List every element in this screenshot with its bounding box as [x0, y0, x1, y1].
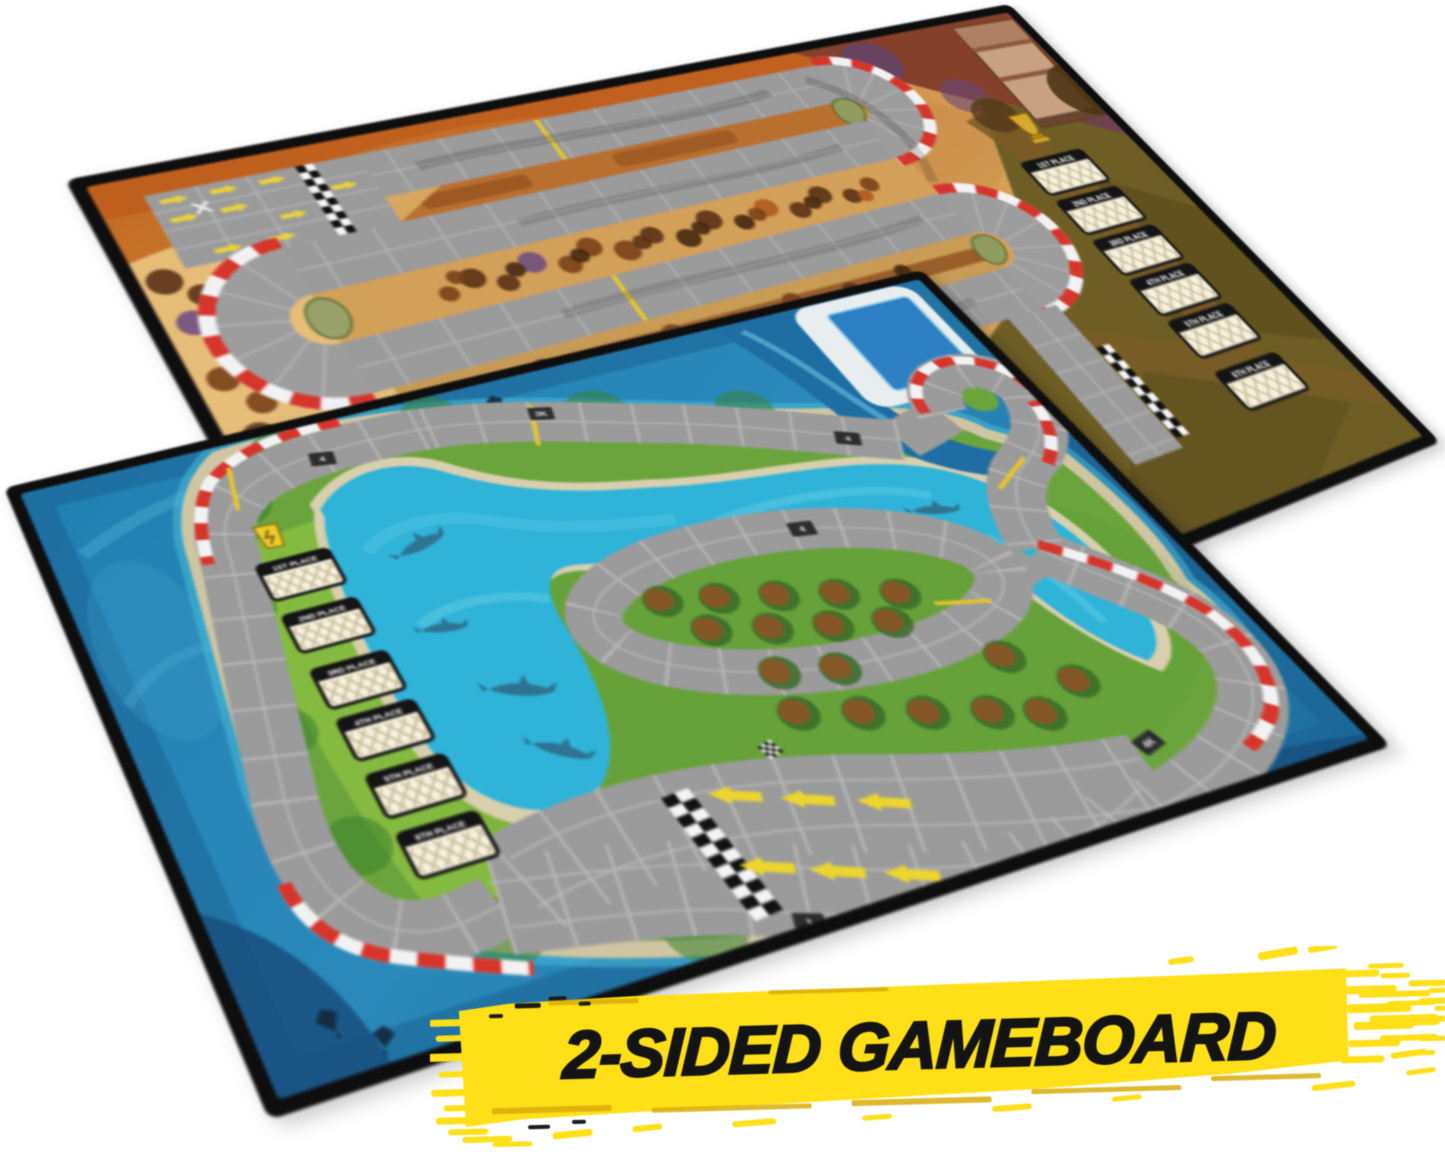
svg-text:3K: 3K: [534, 410, 549, 418]
